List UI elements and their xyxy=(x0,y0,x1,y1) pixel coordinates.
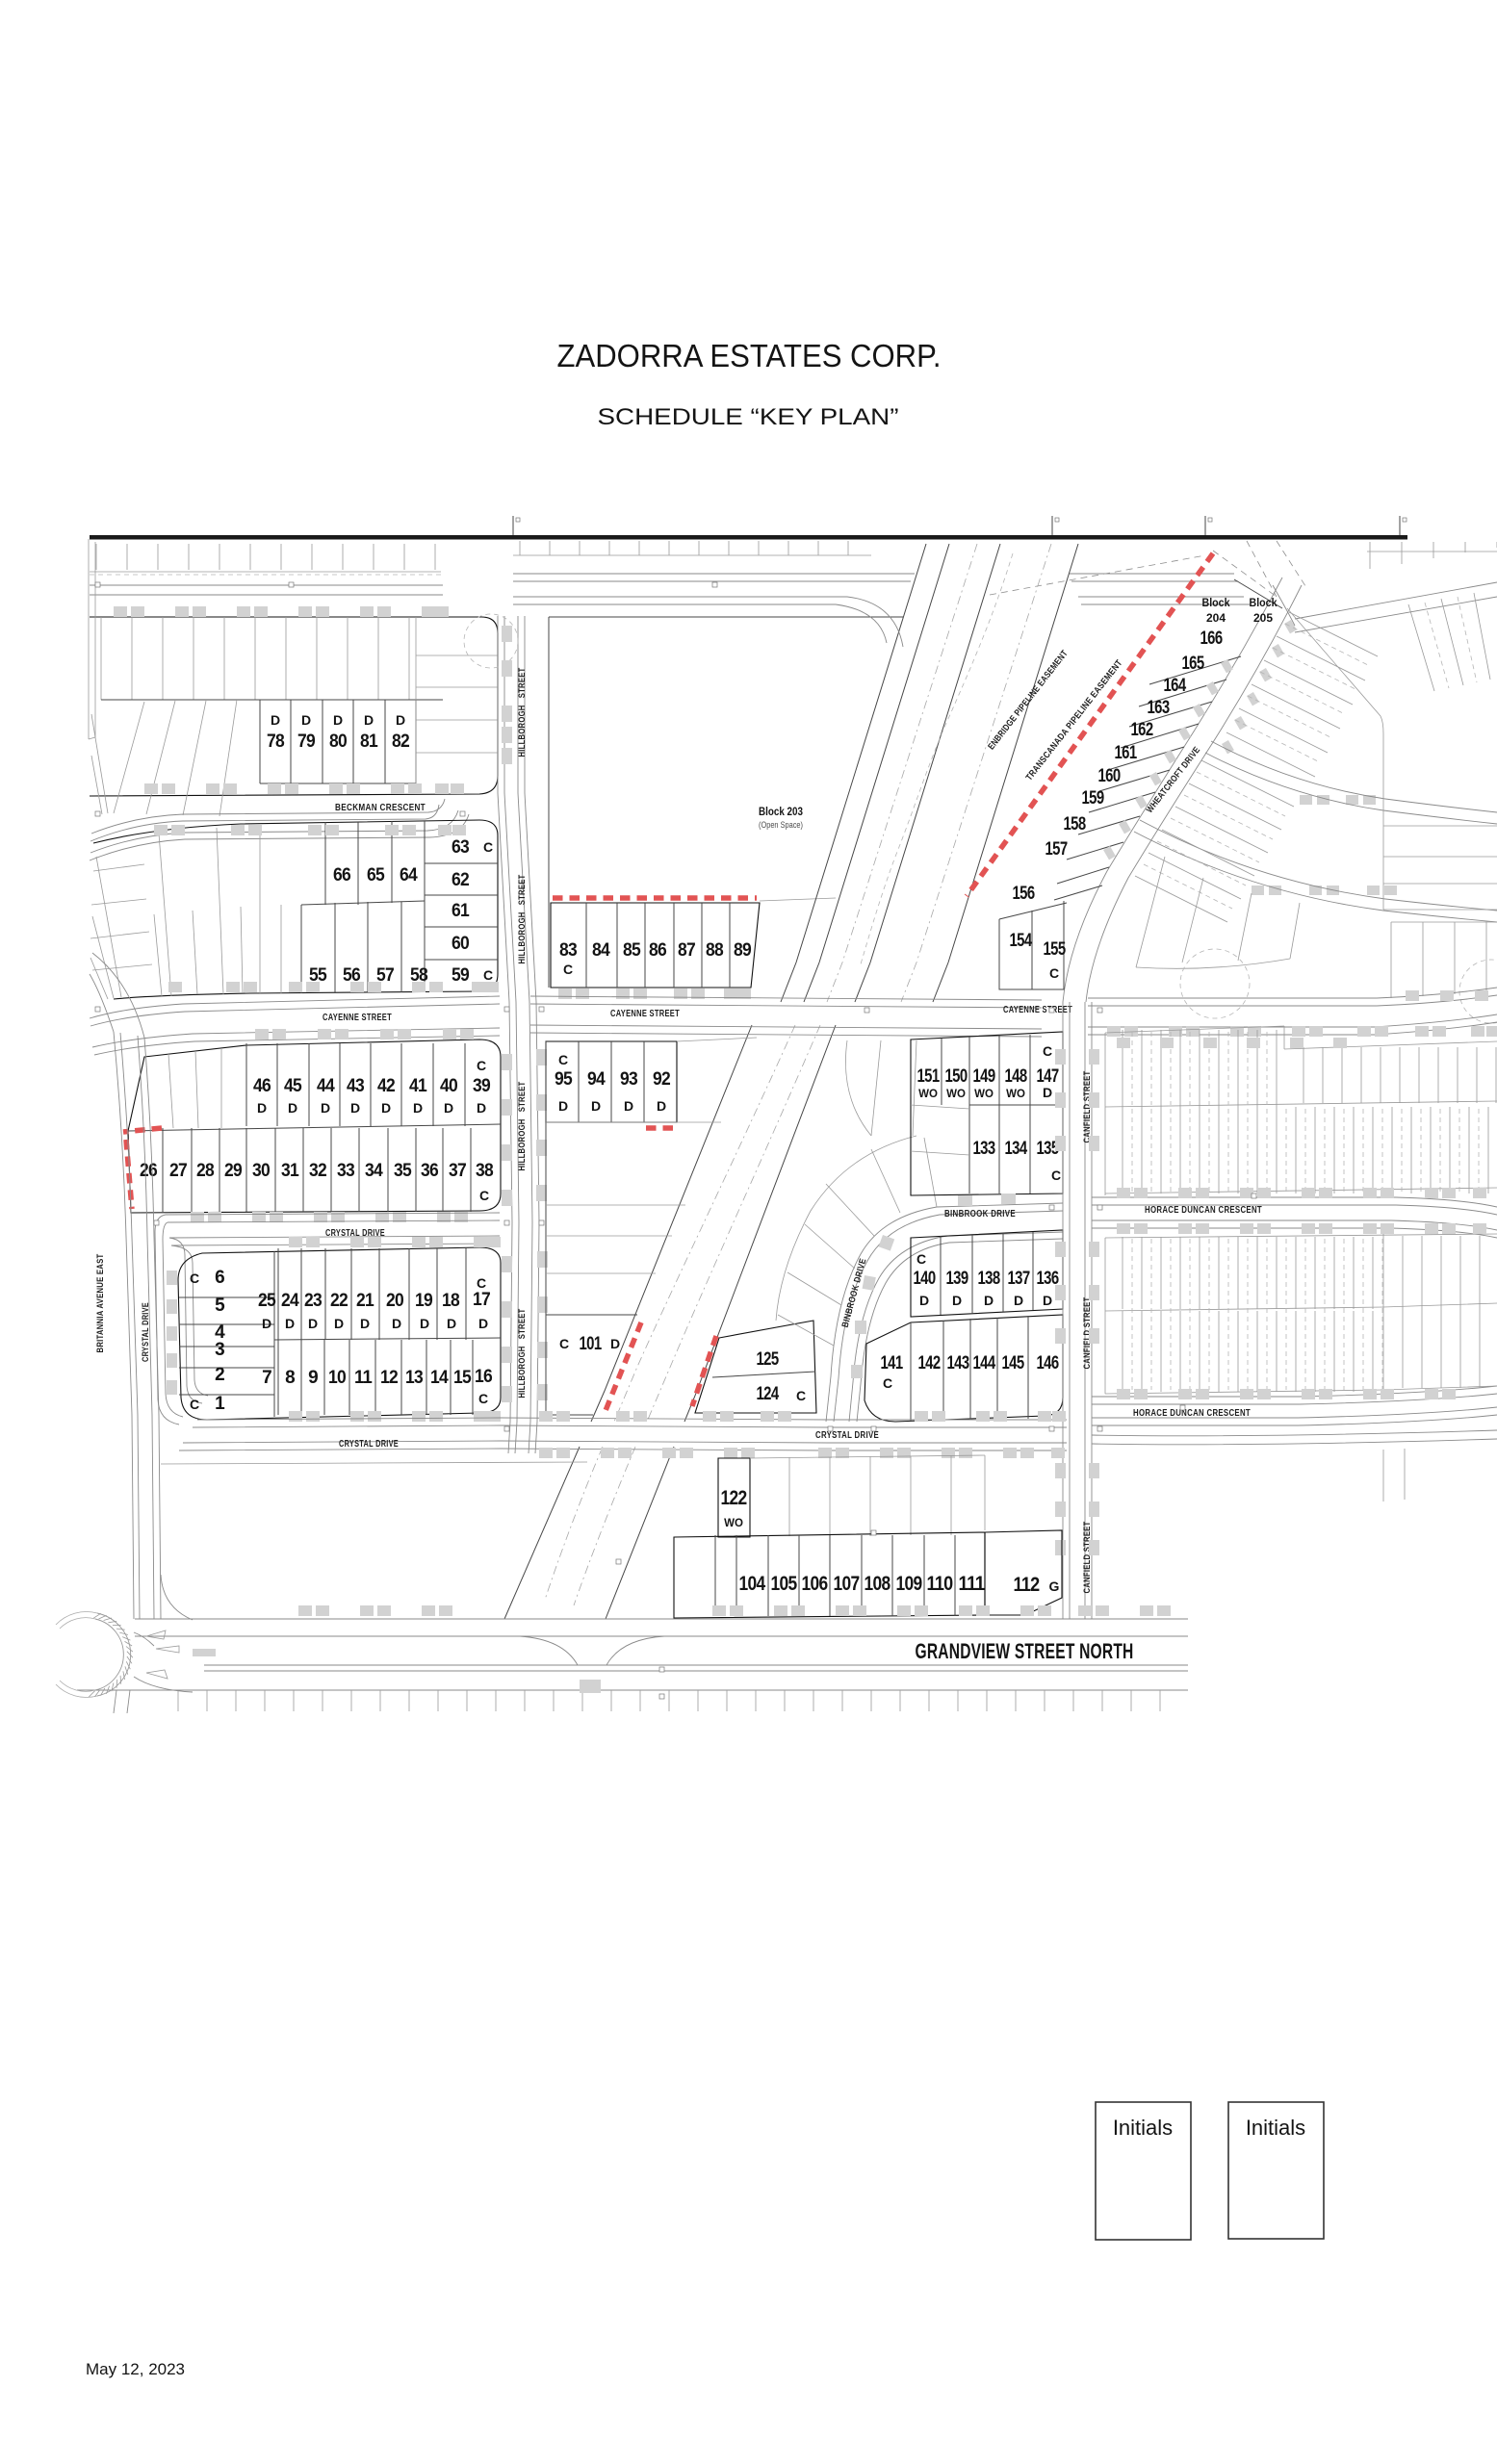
svg-text:112: 112 xyxy=(1014,1574,1040,1596)
svg-text:82: 82 xyxy=(392,731,409,752)
svg-text:8: 8 xyxy=(285,1368,295,1388)
svg-text:58: 58 xyxy=(410,965,427,986)
svg-text:D: D xyxy=(478,1316,488,1331)
svg-text:157: 157 xyxy=(1045,839,1068,860)
svg-text:WO: WO xyxy=(918,1089,938,1100)
svg-text:133: 133 xyxy=(973,1139,995,1159)
svg-text:63: 63 xyxy=(452,837,469,858)
svg-text:D: D xyxy=(610,1336,620,1351)
svg-text:C: C xyxy=(558,1052,568,1067)
svg-text:146: 146 xyxy=(1037,1353,1059,1373)
svg-text:23: 23 xyxy=(304,1291,322,1311)
svg-text:D: D xyxy=(624,1098,633,1114)
svg-text:147: 147 xyxy=(1037,1066,1059,1087)
svg-text:111: 111 xyxy=(959,1573,986,1595)
svg-text:138: 138 xyxy=(978,1269,1000,1289)
svg-text:36: 36 xyxy=(421,1161,438,1181)
svg-text:BECKMAN CRESCENT: BECKMAN CRESCENT xyxy=(335,802,426,813)
svg-text:HILLBOROGH STREET: HILLBOROGH STREET xyxy=(517,875,528,964)
svg-text:C: C xyxy=(477,1058,486,1073)
svg-text:C: C xyxy=(1043,1043,1052,1059)
svg-text:165: 165 xyxy=(1182,654,1205,674)
svg-text:159: 159 xyxy=(1082,788,1104,808)
svg-text:WO: WO xyxy=(946,1089,966,1100)
svg-text:CRYSTAL DRIVE: CRYSTAL DRIVE xyxy=(815,1429,879,1441)
svg-text:106: 106 xyxy=(802,1573,828,1595)
svg-text:2: 2 xyxy=(215,1365,224,1385)
svg-text:144: 144 xyxy=(973,1353,996,1373)
svg-text:7: 7 xyxy=(262,1368,271,1388)
svg-text:G: G xyxy=(1049,1578,1060,1594)
svg-text:17: 17 xyxy=(473,1290,490,1310)
svg-text:D: D xyxy=(364,712,374,728)
svg-text:105: 105 xyxy=(771,1573,798,1595)
svg-text:D: D xyxy=(952,1293,962,1308)
svg-text:142: 142 xyxy=(918,1353,941,1373)
svg-text:61: 61 xyxy=(452,901,470,921)
svg-text:C: C xyxy=(796,1388,806,1403)
svg-text:HORACE DUNCAN CRESCENT: HORACE DUNCAN CRESCENT xyxy=(1145,1204,1262,1216)
svg-text:149: 149 xyxy=(973,1066,995,1087)
svg-text:139: 139 xyxy=(946,1269,968,1289)
svg-text:158: 158 xyxy=(1064,814,1086,834)
svg-text:65: 65 xyxy=(367,865,385,885)
svg-text:6: 6 xyxy=(215,1268,224,1288)
svg-text:May 12, 2023: May 12, 2023 xyxy=(86,2360,185,2378)
svg-text:66: 66 xyxy=(333,865,350,885)
svg-text:(Open Space): (Open Space) xyxy=(759,820,803,830)
svg-text:D: D xyxy=(1043,1293,1052,1308)
svg-text:15: 15 xyxy=(453,1368,472,1388)
svg-text:83: 83 xyxy=(559,940,577,961)
svg-text:HILLBOROGH STREET: HILLBOROGH STREET xyxy=(517,668,528,757)
svg-text:140: 140 xyxy=(914,1269,936,1289)
svg-text:D: D xyxy=(392,1316,401,1331)
svg-text:HILLBOROGH STREET: HILLBOROGH STREET xyxy=(517,1309,528,1399)
svg-text:13: 13 xyxy=(405,1368,423,1388)
svg-text:CAYENNE STREET: CAYENNE STREET xyxy=(610,1008,680,1019)
svg-text:D: D xyxy=(413,1100,423,1116)
svg-text:C: C xyxy=(1051,1168,1061,1183)
svg-text:D: D xyxy=(381,1100,391,1116)
svg-text:D: D xyxy=(321,1100,330,1116)
svg-text:163: 163 xyxy=(1148,698,1170,718)
svg-text:84: 84 xyxy=(592,940,610,961)
svg-text:C: C xyxy=(483,967,493,983)
svg-text:124: 124 xyxy=(757,1384,780,1404)
svg-text:D: D xyxy=(334,1316,344,1331)
svg-text:SCHEDULE “KEY PLAN”: SCHEDULE “KEY PLAN” xyxy=(598,404,899,430)
svg-text:46: 46 xyxy=(253,1076,271,1096)
svg-text:88: 88 xyxy=(706,940,723,961)
svg-text:44: 44 xyxy=(317,1076,335,1096)
svg-text:204: 204 xyxy=(1206,613,1226,625)
svg-text:C: C xyxy=(563,962,573,977)
svg-text:80: 80 xyxy=(329,731,347,752)
svg-text:D: D xyxy=(558,1098,568,1114)
svg-text:25: 25 xyxy=(258,1291,276,1311)
svg-text:151: 151 xyxy=(917,1066,941,1087)
svg-text:32: 32 xyxy=(309,1161,326,1181)
svg-text:D: D xyxy=(447,1316,456,1331)
svg-text:9: 9 xyxy=(308,1368,318,1388)
svg-text:C: C xyxy=(1049,965,1059,981)
svg-text:3: 3 xyxy=(215,1340,224,1360)
svg-text:94: 94 xyxy=(587,1069,606,1090)
svg-text:21: 21 xyxy=(356,1291,374,1311)
svg-text:D: D xyxy=(360,1316,370,1331)
svg-text:148: 148 xyxy=(1005,1066,1027,1087)
svg-text:16: 16 xyxy=(475,1367,492,1387)
svg-text:155: 155 xyxy=(1044,939,1067,960)
svg-text:C: C xyxy=(483,839,493,855)
svg-text:C: C xyxy=(477,1275,486,1291)
svg-text:5: 5 xyxy=(215,1296,225,1316)
svg-text:81: 81 xyxy=(360,731,378,752)
svg-text:55: 55 xyxy=(309,965,327,986)
svg-text:10: 10 xyxy=(328,1368,346,1388)
svg-text:64: 64 xyxy=(400,865,418,885)
svg-text:34: 34 xyxy=(365,1161,383,1181)
svg-text:156: 156 xyxy=(1013,884,1035,904)
svg-text:D: D xyxy=(333,712,343,728)
svg-text:62: 62 xyxy=(452,870,469,890)
svg-text:HILLBOROGH STREET: HILLBOROGH STREET xyxy=(517,1082,528,1171)
svg-text:C: C xyxy=(916,1251,926,1267)
svg-text:C: C xyxy=(479,1188,489,1203)
svg-text:C: C xyxy=(190,1397,199,1412)
svg-text:31: 31 xyxy=(281,1161,299,1181)
svg-text:154: 154 xyxy=(1010,931,1033,951)
svg-text:40: 40 xyxy=(440,1076,457,1096)
svg-text:12: 12 xyxy=(380,1368,398,1388)
svg-text:22: 22 xyxy=(330,1291,348,1311)
svg-text:141: 141 xyxy=(881,1353,904,1373)
svg-text:37: 37 xyxy=(449,1161,466,1181)
svg-text:161: 161 xyxy=(1115,743,1138,763)
svg-text:D: D xyxy=(919,1293,929,1308)
svg-text:89: 89 xyxy=(734,940,751,961)
svg-text:CAYENNE STREET: CAYENNE STREET xyxy=(1003,1004,1072,1015)
svg-text:30: 30 xyxy=(252,1161,270,1181)
svg-text:56: 56 xyxy=(343,965,360,986)
svg-text:108: 108 xyxy=(865,1573,891,1595)
svg-text:137: 137 xyxy=(1008,1269,1030,1289)
svg-text:160: 160 xyxy=(1098,766,1121,786)
svg-text:24: 24 xyxy=(281,1291,299,1311)
svg-text:C: C xyxy=(190,1270,199,1286)
svg-text:D: D xyxy=(271,712,280,728)
svg-text:D: D xyxy=(288,1100,297,1116)
svg-text:BRITANNIA AVENUE EAST: BRITANNIA AVENUE EAST xyxy=(95,1254,106,1353)
svg-text:60: 60 xyxy=(452,934,469,954)
svg-text:87: 87 xyxy=(678,940,695,961)
svg-text:95: 95 xyxy=(555,1069,573,1090)
svg-text:42: 42 xyxy=(377,1076,395,1096)
svg-text:26: 26 xyxy=(140,1161,157,1181)
svg-text:WO: WO xyxy=(724,1518,743,1529)
svg-text:C: C xyxy=(478,1391,488,1406)
svg-text:41: 41 xyxy=(409,1076,427,1096)
svg-text:D: D xyxy=(262,1316,271,1331)
svg-text:38: 38 xyxy=(476,1161,493,1181)
svg-text:162: 162 xyxy=(1131,720,1153,740)
svg-text:D: D xyxy=(657,1098,666,1114)
svg-text:20: 20 xyxy=(386,1291,403,1311)
svg-text:85: 85 xyxy=(623,940,641,961)
svg-text:164: 164 xyxy=(1164,676,1187,696)
svg-text:D: D xyxy=(301,712,311,728)
svg-text:Block: Block xyxy=(1202,598,1231,609)
svg-text:33: 33 xyxy=(337,1161,354,1181)
svg-text:18: 18 xyxy=(442,1291,459,1311)
svg-text:D: D xyxy=(308,1316,318,1331)
svg-text:D: D xyxy=(1043,1085,1052,1100)
svg-text:D: D xyxy=(1014,1293,1023,1308)
svg-text:79: 79 xyxy=(297,731,315,752)
svg-text:CRYSTAL DRIVE: CRYSTAL DRIVE xyxy=(339,1438,399,1450)
svg-text:Block 203: Block 203 xyxy=(759,807,803,818)
svg-text:57: 57 xyxy=(376,965,394,986)
svg-text:D: D xyxy=(257,1100,267,1116)
svg-text:14: 14 xyxy=(430,1368,449,1388)
svg-text:GRANDVIEW STREET NORTH: GRANDVIEW STREET NORTH xyxy=(916,1639,1134,1663)
svg-text:104: 104 xyxy=(739,1573,766,1595)
svg-text:92: 92 xyxy=(653,1069,670,1090)
svg-text:109: 109 xyxy=(896,1573,922,1595)
svg-text:166: 166 xyxy=(1200,629,1223,649)
svg-text:86: 86 xyxy=(649,940,666,961)
svg-text:107: 107 xyxy=(834,1573,860,1595)
svg-text:ZADORRA ESTATES CORP.: ZADORRA ESTATES CORP. xyxy=(557,338,942,373)
svg-text:134: 134 xyxy=(1005,1139,1028,1159)
svg-text:45: 45 xyxy=(284,1076,302,1096)
svg-text:D: D xyxy=(591,1098,601,1114)
svg-text:CANFIELD STREET: CANFIELD STREET xyxy=(1082,1522,1093,1594)
svg-text:WO: WO xyxy=(1006,1089,1025,1100)
svg-text:D: D xyxy=(477,1100,486,1116)
svg-text:11: 11 xyxy=(354,1368,373,1388)
svg-text:D: D xyxy=(350,1100,360,1116)
svg-text:28: 28 xyxy=(196,1161,214,1181)
svg-text:Block: Block xyxy=(1250,598,1278,609)
svg-text:27: 27 xyxy=(169,1161,187,1181)
svg-text:D: D xyxy=(984,1293,994,1308)
svg-text:HORACE DUNCAN CRESCENT: HORACE DUNCAN CRESCENT xyxy=(1133,1407,1251,1419)
svg-text:143: 143 xyxy=(947,1353,969,1373)
svg-text:D: D xyxy=(420,1316,429,1331)
svg-text:Initials: Initials xyxy=(1113,2116,1173,2140)
svg-text:205: 205 xyxy=(1253,613,1274,625)
svg-text:35: 35 xyxy=(394,1161,412,1181)
svg-text:D: D xyxy=(285,1316,295,1331)
svg-text:CAYENNE STREET: CAYENNE STREET xyxy=(323,1012,392,1023)
svg-text:Initials: Initials xyxy=(1246,2116,1305,2140)
svg-text:125: 125 xyxy=(757,1349,780,1370)
svg-text:43: 43 xyxy=(347,1076,364,1096)
svg-text:78: 78 xyxy=(267,731,284,752)
svg-text:19: 19 xyxy=(415,1291,432,1311)
svg-text:1: 1 xyxy=(215,1394,225,1414)
svg-text:110: 110 xyxy=(927,1573,953,1595)
svg-text:59: 59 xyxy=(452,965,469,986)
svg-text:101: 101 xyxy=(580,1334,603,1354)
svg-text:C: C xyxy=(559,1336,569,1351)
svg-text:D: D xyxy=(444,1100,453,1116)
svg-text:145: 145 xyxy=(1002,1353,1025,1373)
svg-text:29: 29 xyxy=(224,1161,242,1181)
svg-text:C: C xyxy=(883,1375,892,1391)
svg-text:39: 39 xyxy=(473,1076,490,1096)
svg-text:WO: WO xyxy=(974,1089,994,1100)
svg-text:BINBROOK DRIVE: BINBROOK DRIVE xyxy=(944,1208,1016,1219)
svg-text:D: D xyxy=(396,712,405,728)
svg-text:122: 122 xyxy=(721,1487,747,1509)
svg-text:93: 93 xyxy=(620,1069,637,1090)
svg-text:150: 150 xyxy=(945,1066,968,1087)
